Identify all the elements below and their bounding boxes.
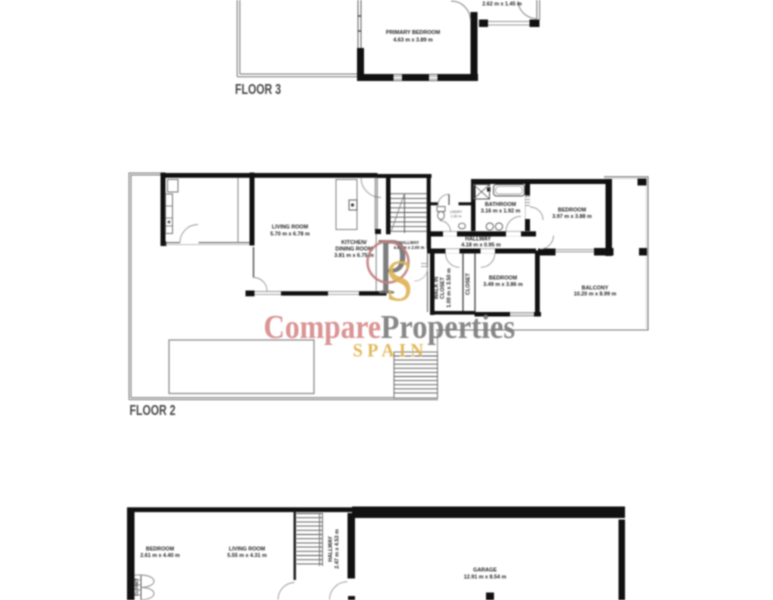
svg-text:2.62 m x 1.45 m: 2.62 m x 1.45 m: [482, 2, 522, 8]
svg-text:DINING ROOM: DINING ROOM: [335, 247, 373, 253]
svg-text:LIVING ROOM: LIVING ROOM: [229, 547, 266, 553]
svg-text:BEDROOM: BEDROOM: [146, 547, 175, 553]
svg-text:3.49 m x 3.86 m: 3.49 m x 3.86 m: [483, 282, 523, 288]
svg-text:CLOSET: CLOSET: [134, 578, 139, 596]
svg-text:BEDROOM: BEDROOM: [489, 276, 518, 282]
svg-text:CLOSET: CLOSET: [440, 276, 446, 299]
svg-text:10.20 m x 8.99 m: 10.20 m x 8.99 m: [574, 292, 617, 298]
svg-text:FLOOR 2: FLOOR 2: [130, 403, 176, 419]
svg-text:4.63 m x 3.89 m: 4.63 m x 3.89 m: [393, 38, 433, 44]
svg-text:2.61 m x 4.40 m: 2.61 m x 4.40 m: [140, 553, 180, 559]
svg-text:1.90 m: 1.90 m: [451, 215, 462, 219]
svg-text:LNDRY: LNDRY: [450, 210, 463, 214]
svg-text:S: S: [386, 248, 414, 314]
svg-text:3.97 m x 3.88 m: 3.97 m x 3.88 m: [552, 214, 592, 220]
svg-text:KITCHEN/: KITCHEN/: [341, 240, 367, 246]
svg-text:CLOSET: CLOSET: [466, 272, 472, 295]
svg-text:HALLWAY: HALLWAY: [328, 536, 334, 562]
svg-text:LIVING ROOM: LIVING ROOM: [272, 225, 309, 231]
svg-text:BALCONY: BALCONY: [582, 285, 609, 291]
svg-text:1.00 m x 3.50 m: 1.00 m x 3.50 m: [447, 268, 453, 308]
svg-text:4.18 m x 0.95 m: 4.18 m x 0.95 m: [461, 243, 501, 249]
svg-text:GARAGE: GARAGE: [473, 568, 497, 574]
svg-text:FLOOR 3: FLOOR 3: [235, 82, 281, 98]
svg-text:12.91 m x 8.54 m: 12.91 m x 8.54 m: [464, 575, 507, 581]
svg-text:BEDROOM: BEDROOM: [558, 208, 587, 214]
svg-text:2.47 m x 4.53 m: 2.47 m x 4.53 m: [335, 529, 341, 569]
svg-text:3.16 m x 1.92 m: 3.16 m x 1.92 m: [481, 208, 521, 214]
svg-text:PRIMARY BEDROOM: PRIMARY BEDROOM: [386, 30, 441, 36]
svg-text:BATHROOM: BATHROOM: [485, 202, 517, 208]
svg-text:5.70 m x 6.78 m: 5.70 m x 6.78 m: [270, 232, 310, 238]
svg-text:SPAIN: SPAIN: [353, 342, 428, 362]
svg-text:5.55 m x 4.31 m: 5.55 m x 4.31 m: [227, 553, 267, 559]
